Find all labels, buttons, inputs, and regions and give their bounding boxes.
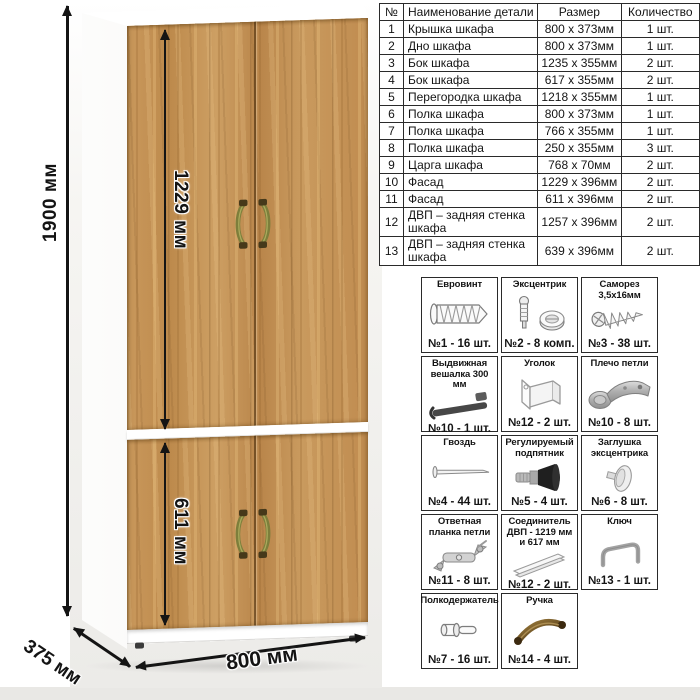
table-row: 5Перегородка шкафа1218 x 355мм1 шт. (380, 89, 700, 106)
table-row: 3Бок шкафа1235 x 355мм2 шт. (380, 55, 700, 72)
parts-table: № Наименование детали Размер Количество … (379, 3, 700, 266)
hardware-item-hinge-arm: Плечо петли №1 (581, 356, 658, 432)
lower-left-handle-icon (231, 508, 248, 561)
hardware-item-samorez: Саморез 3,5х16мм №3 - 38 шт. (581, 277, 658, 353)
height-dimension-label: 1900 мм (40, 163, 62, 242)
table-row: 12ДВП – задняя стенка шкафа1257 x 396мм2… (380, 208, 700, 237)
upper-door-gap (254, 22, 256, 426)
handle-icon (503, 607, 576, 655)
hardware-item-hdf-connector: Соединитель ДВП - 1219 мм и 617 мм №12 -… (501, 514, 578, 590)
upper-left-handle-icon (231, 198, 248, 251)
lower-right-handle-icon (258, 507, 275, 560)
hardware-item-ugolok: Уголок №12 - 2 шт. (501, 356, 578, 432)
table-row: 1Крышка шкафа800 x 373мм1 шт. (380, 21, 700, 38)
corner-bracket-icon (503, 370, 576, 418)
table-row: 6Полка шкафа800 x 373мм1 шт. (380, 106, 700, 123)
height-dimension-arrow (66, 6, 69, 616)
cam-lock-icon (503, 291, 576, 339)
table-row: 10Фасад1229 x 396мм2 шт. (380, 174, 700, 191)
hex-key-icon (583, 528, 656, 576)
upper-right-handle-icon (258, 197, 275, 250)
lower-door-gap (254, 436, 256, 626)
table-row: 4Бок шкафа617 x 355мм2 шт. (380, 72, 700, 89)
nail-icon (423, 449, 496, 497)
self-tapping-screw-icon (583, 301, 656, 338)
cam-cap-icon (583, 459, 656, 496)
parts-table-header: № Наименование детали Размер Количество (380, 4, 700, 21)
table-row: 11Фасад611 x 396мм2 шт. (380, 191, 700, 208)
hardware-item-excentric: Эксцентрик №2 - 8 комп. (501, 277, 578, 353)
hardware-item-eurovint: Евровинт №1 - 16 шт. (421, 277, 498, 353)
shelf-pin-icon (423, 607, 496, 655)
hinge-arm-icon (583, 370, 656, 418)
hinge-plate-icon (423, 538, 496, 575)
lower-door-dimension-arrow (164, 443, 167, 625)
hdf-connector-icon (503, 549, 576, 579)
pull-out-hanger-icon (423, 391, 496, 423)
hardware-grid: Евровинт №1 - 16 шт. Эксцентрик (421, 277, 658, 669)
hardware-item-foot: Регулируемый подпятник №5 - 4 шт. (501, 435, 578, 511)
hardware-item-cam-cap: Заглушка эксцентрика №6 - 8 шт. (581, 435, 658, 511)
wardrobe-foot-left (135, 642, 144, 648)
table-row: 8Полка шкафа250 x 355мм3 шт. (380, 140, 700, 157)
euro-screw-icon (423, 291, 496, 339)
hardware-item-handle: Ручка №14 - 4 шт. (501, 593, 578, 669)
table-row: 9Царга шкафа768 x 70мм2 шт. (380, 157, 700, 174)
furniture-assembly-diagram: 1900 мм 1229 мм 611 мм 375 мм 800 мм № Н… (0, 0, 700, 700)
hardware-item-nail: Гвоздь №4 - 44 шт. (421, 435, 498, 511)
hardware-item-hanger: Выдвижная вешалка 300 мм №10 - 1 шт. (421, 356, 498, 432)
adjustable-foot-icon (503, 459, 576, 496)
col-header-qty: Количество (621, 4, 699, 21)
wardrobe-illustration (0, 0, 420, 700)
hardware-item-hinge-plate: Ответная планка петли №11 - 8 шт. (421, 514, 498, 590)
upper-door-dimension-label: 1229 мм (169, 170, 191, 249)
upper-door-dimension-arrow (164, 30, 167, 429)
hardware-item-shelf-pin: Полкодержатель №7 - 16 шт. (421, 593, 498, 669)
table-row: 7Полка шкафа766 x 355мм1 шт. (380, 123, 700, 140)
table-row: 2Дно шкафа800 x 373мм1 шт. (380, 38, 700, 55)
col-header-name: Наименование детали (403, 4, 537, 21)
table-row: 13ДВП – задняя стенка шкафа639 x 396мм2 … (380, 237, 700, 266)
hardware-item-key: Ключ №13 - 1 шт. (581, 514, 658, 590)
col-header-size: Размер (538, 4, 621, 21)
lower-door-dimension-label: 611 мм (169, 498, 191, 565)
col-header-num: № (380, 4, 404, 21)
